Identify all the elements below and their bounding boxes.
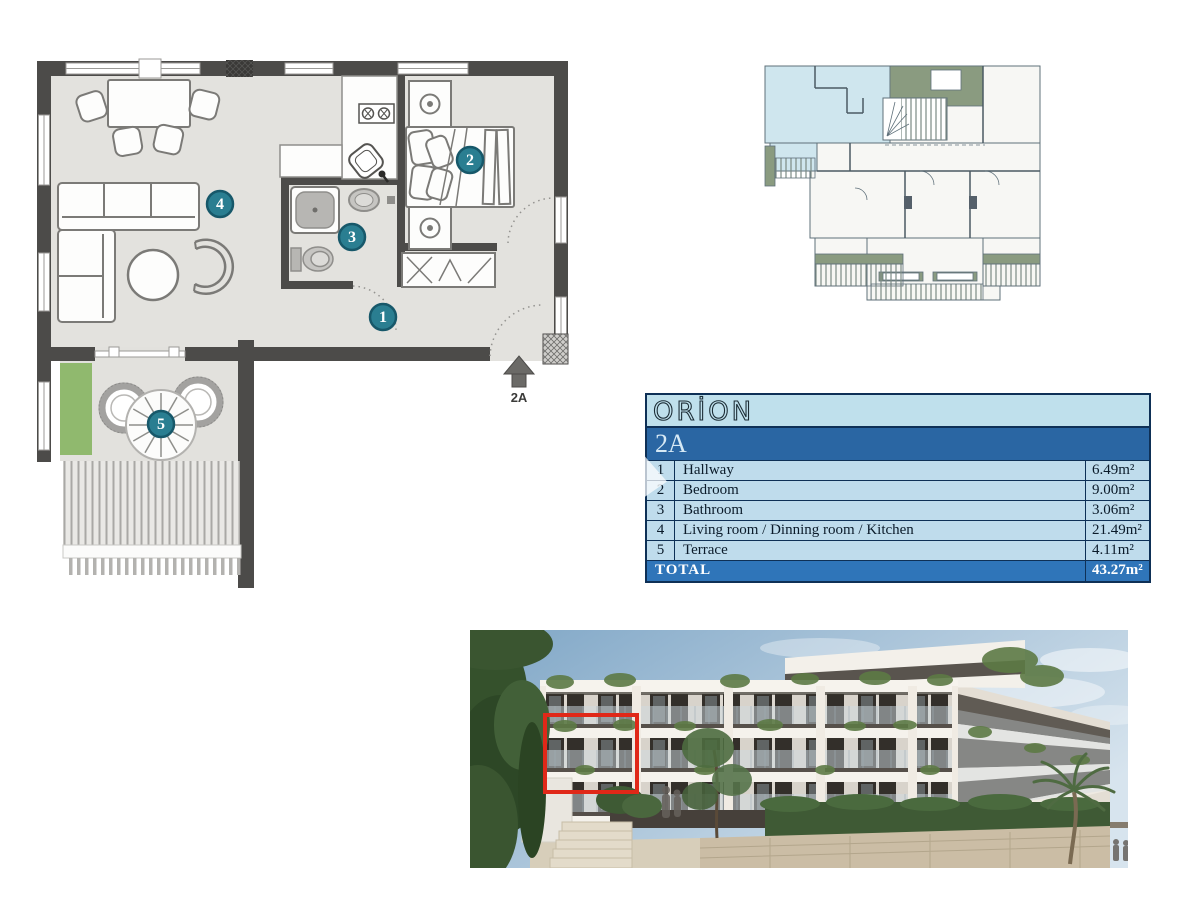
room-name: Terrace [675, 541, 1085, 560]
room-area: 9.00m² [1085, 481, 1149, 500]
shaft-hatch [226, 60, 253, 77]
row-number: 4 [647, 521, 675, 540]
entrance-arrow-icon: 2A [504, 356, 534, 405]
unit-info-table: ORİON 2A 1 Hallway 6.49m² 2 Bedroom 9.00… [645, 393, 1151, 583]
building-photo [470, 630, 1128, 868]
terrace-planter [60, 363, 92, 455]
pergola [63, 461, 241, 576]
unit-header: 2A [647, 428, 1149, 461]
row-number: 2 [647, 481, 675, 500]
table-row: 1 Hallway 6.49m² [647, 461, 1149, 481]
svg-text:5: 5 [157, 416, 165, 433]
room-badge-hallway: 1 [370, 304, 396, 330]
orion-logo: ORİON [647, 395, 867, 426]
brochure-page: 2A 1 2 3 4 5 [0, 0, 1200, 900]
entry-corner-hatch [543, 334, 568, 364]
highlighted-unit-2a [765, 66, 890, 143]
row-number: 3 [647, 501, 675, 520]
table-row: 3 Bathroom 3.06m² [647, 501, 1149, 521]
room-badge-bathroom: 3 [339, 224, 365, 250]
room-name: Bathroom [675, 501, 1085, 520]
row-number: 1 [647, 461, 675, 480]
svg-text:1: 1 [379, 309, 387, 326]
room-name: Bedroom [675, 481, 1085, 500]
toilet [291, 247, 333, 271]
steps [550, 822, 632, 868]
total-row: TOTAL 43.27m² [647, 561, 1149, 581]
wardrobe [402, 253, 495, 287]
room-name: Hallway [675, 461, 1085, 480]
apartment-floor-plan: 2A 1 2 3 4 5 [35, 57, 575, 592]
brand-logo-row: ORİON [647, 395, 1149, 428]
room-name: Living room / Dinning room / Kitchen [675, 521, 1085, 540]
room-area: 4.11m² [1085, 541, 1149, 560]
svg-text:2: 2 [466, 152, 474, 169]
total-area: 43.27m² [1085, 561, 1149, 581]
svg-text:ORİON: ORİON [653, 395, 754, 426]
svg-text:4: 4 [216, 196, 224, 213]
row-number: 5 [647, 541, 675, 560]
room-area: 6.49m² [1085, 461, 1149, 480]
stove-icon [359, 104, 394, 123]
room-badge-bedroom: 2 [457, 147, 483, 173]
svg-text:3: 3 [348, 229, 356, 246]
room-area: 3.06m² [1085, 501, 1149, 520]
table-row: 5 Terrace 4.11m² [647, 541, 1149, 561]
room-area: 21.49m² [1085, 521, 1149, 540]
table-row: 2 Bedroom 9.00m² [647, 481, 1149, 501]
table-row: 4 Living room / Dinning room / Kitchen 2… [647, 521, 1149, 541]
entrance-label: 2A [511, 390, 528, 405]
room-badge-terrace: 5 [148, 411, 174, 437]
building-key-plan [755, 58, 1050, 303]
room-badge-living: 4 [207, 191, 233, 217]
total-label: TOTAL [647, 561, 1085, 581]
coffee-table [128, 250, 178, 300]
